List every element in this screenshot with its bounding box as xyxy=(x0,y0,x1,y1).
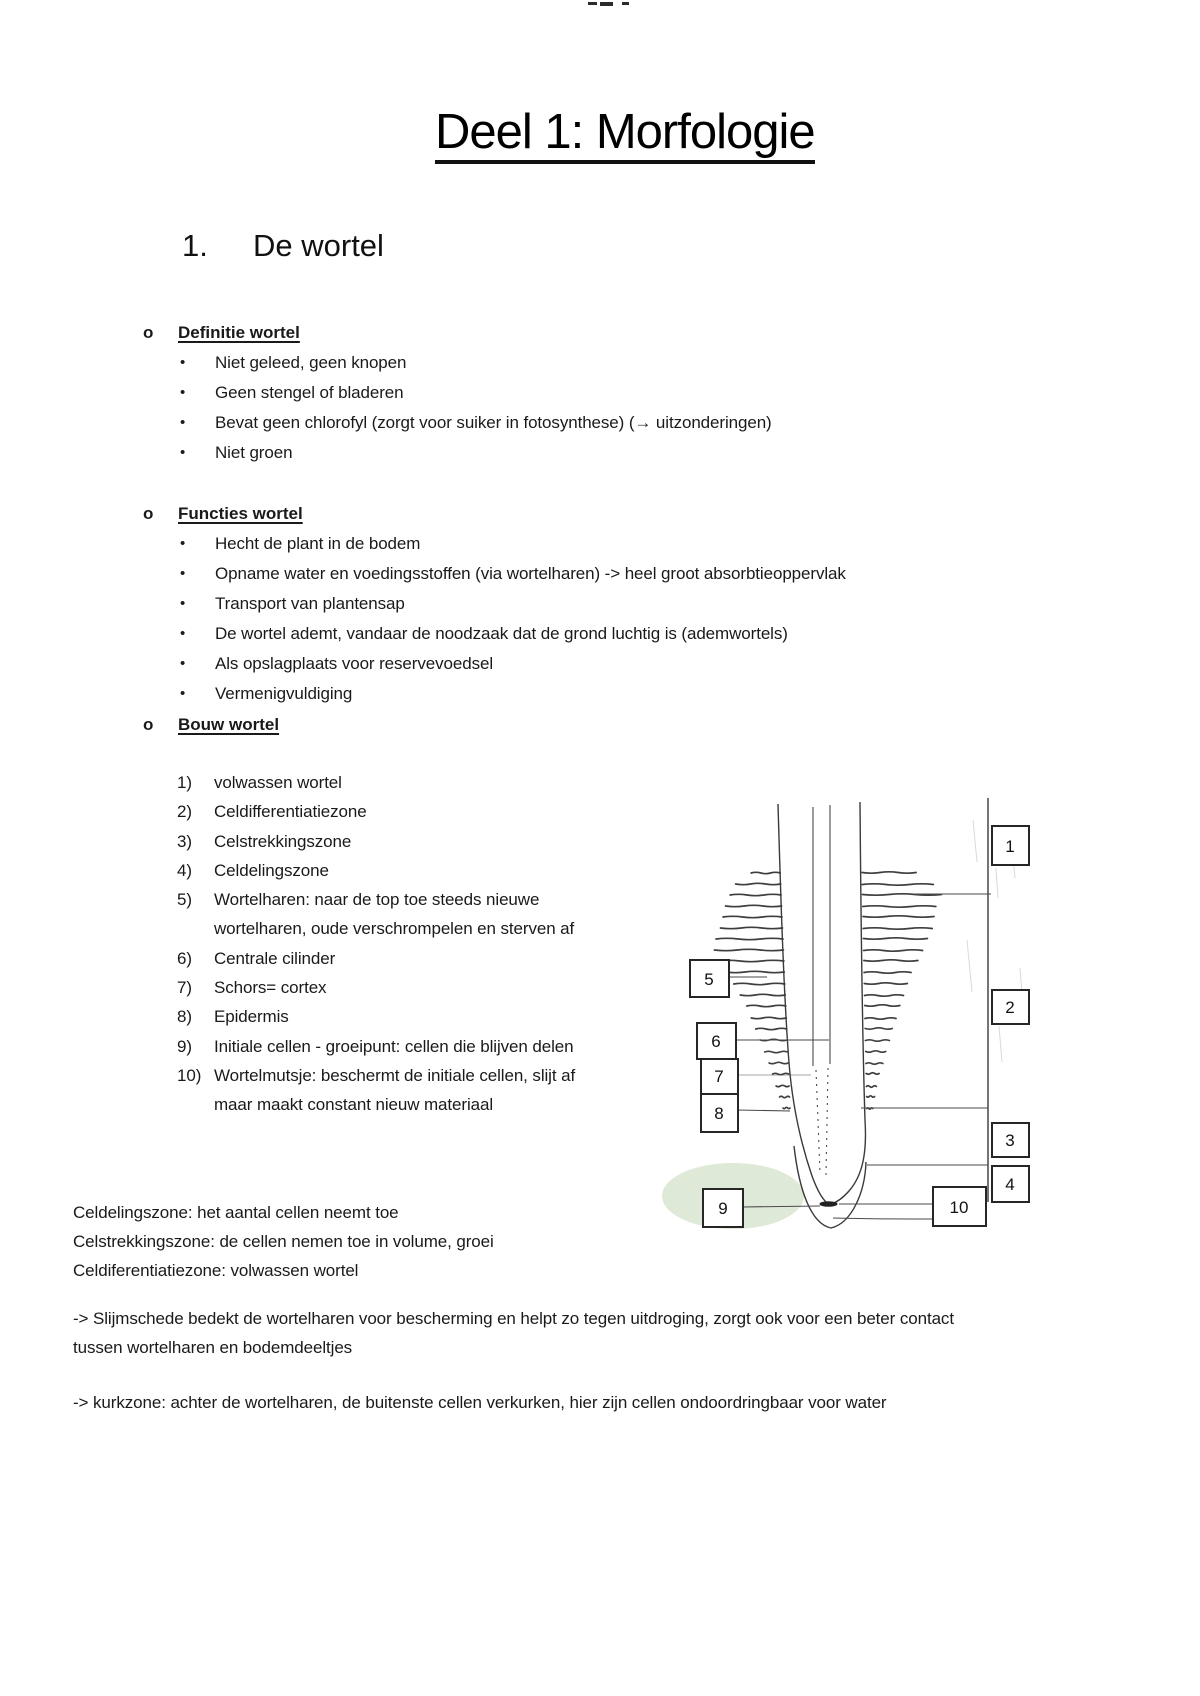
zone-note: Celdiferentiatiezone: volwassen wortel xyxy=(73,1256,1173,1285)
item-number: 1) xyxy=(177,768,214,797)
diagram-label-box-4: 4 xyxy=(992,1166,1029,1202)
zone-notes: Celdelingszone: het aantal cellen neemt … xyxy=(73,1198,1173,1285)
bullet-icon: • xyxy=(180,649,215,679)
item-number: 6) xyxy=(177,944,214,973)
item-number: 9) xyxy=(177,1032,214,1061)
diagram-label-box-8: 8 xyxy=(701,1094,738,1132)
svg-text:1: 1 xyxy=(1005,837,1014,856)
item-number: 7) xyxy=(177,973,214,1002)
section-marker: o xyxy=(143,710,178,740)
item-text: Epidermis xyxy=(214,1002,289,1031)
list-item: •Als opslagplaats voor reservevoedsel xyxy=(180,649,1123,679)
svg-text:4: 4 xyxy=(1005,1175,1014,1194)
diagram-label-box-3: 3 xyxy=(992,1123,1029,1157)
item-text: volwassen wortel xyxy=(214,768,342,797)
section-title-definitie: Definitie wortel xyxy=(178,318,300,348)
bullet-text: Hecht de plant in de bodem xyxy=(215,529,420,559)
numbered-item: 10)Wortelmutsje: beschermt de initiale c… xyxy=(177,1061,687,1120)
bullet-text: Vermenigvuldiging xyxy=(215,679,352,709)
bullet-icon: • xyxy=(180,619,215,649)
numbered-item: 2)Celdifferentiatiezone xyxy=(177,797,687,826)
list-item: •Opname water en voedingsstoffen (via wo… xyxy=(180,559,1123,589)
bullet-text: Bevat geen chlorofyl (zorgt voor suiker … xyxy=(215,408,772,438)
item-text: Wortelmutsje: beschermt de initiale cell… xyxy=(214,1061,575,1120)
bullet-text: Opname water en voedingsstoffen (via wor… xyxy=(215,559,846,589)
diagram-label-box-7: 7 xyxy=(701,1059,738,1094)
bullet-icon: • xyxy=(180,438,215,468)
item-text: Wortelharen: naar de top toe steeds nieu… xyxy=(214,885,574,944)
item-text: Initiale cellen - groeipunt: cellen die … xyxy=(214,1032,574,1061)
page-title: Deel 1: Morfologie xyxy=(435,106,815,164)
diagram-label-box-6: 6 xyxy=(697,1023,736,1059)
list-item: •Vermenigvuldiging xyxy=(180,679,1123,709)
numbered-item: 8)Epidermis xyxy=(177,1002,687,1031)
note-kurkzone: -> kurkzone: achter de wortelharen, de b… xyxy=(73,1388,1171,1417)
bullet-text: Niet groen xyxy=(215,438,292,468)
item-text: Celdelingszone xyxy=(214,856,329,885)
section-definitie: o Definitie wortel •Niet geleed, geen kn… xyxy=(143,318,1123,468)
list-item: •Transport van plantensap xyxy=(180,589,1123,619)
section-marker: o xyxy=(143,499,178,529)
item-number: 3) xyxy=(177,827,214,856)
svg-text:5: 5 xyxy=(704,970,713,989)
bullet-icon: • xyxy=(180,589,215,619)
bullet-text: Als opslagplaats voor reservevoedsel xyxy=(215,649,493,679)
bouw-numbered-list: 1)volwassen wortel 2)Celdifferentiatiezo… xyxy=(177,768,687,1120)
item-number: 4) xyxy=(177,856,214,885)
svg-text:8: 8 xyxy=(714,1104,723,1123)
chapter-number: 1. xyxy=(182,228,253,264)
numbered-item: 3)Celstrekkingszone xyxy=(177,827,687,856)
diagram-label-box-2: 2 xyxy=(992,990,1029,1024)
list-item: •Niet geleed, geen knopen xyxy=(180,348,1123,378)
bullet-text: Transport van plantensap xyxy=(215,589,405,619)
bullet-icon: • xyxy=(180,529,215,559)
item-number: 5) xyxy=(177,885,214,944)
item-text: Centrale cilinder xyxy=(214,944,335,973)
chapter-heading: 1. De wortel xyxy=(182,228,384,264)
numbered-item: 4)Celdelingszone xyxy=(177,856,687,885)
bullet-icon: • xyxy=(180,378,215,408)
zone-note: Celstrekkingszone: de cellen nemen toe i… xyxy=(73,1227,1173,1256)
chapter-title: De wortel xyxy=(253,228,384,264)
item-number: 10) xyxy=(177,1061,214,1120)
numbered-item: 6)Centrale cilinder xyxy=(177,944,687,973)
svg-text:2: 2 xyxy=(1005,998,1014,1017)
item-text: Celdifferentiatiezone xyxy=(214,797,367,826)
section-marker: o xyxy=(143,318,178,348)
bullet-text: Geen stengel of bladeren xyxy=(215,378,404,408)
zone-note: Celdelingszone: het aantal cellen neemt … xyxy=(73,1198,1173,1227)
note-slijmschede: -> Slijmschede bedekt de wortelharen voo… xyxy=(73,1304,1171,1362)
section-title-functies: Functies wortel xyxy=(178,499,303,529)
list-item: •Bevat geen chlorofyl (zorgt voor suiker… xyxy=(180,408,1123,438)
root-diagram: 1 2 3 4 5 6 7 8 9 10 xyxy=(615,728,1035,1240)
bullet-icon: • xyxy=(180,348,215,378)
item-text: Celstrekkingszone xyxy=(214,827,351,856)
list-item: •De wortel ademt, vandaar de noodzaak da… xyxy=(180,619,1123,649)
diagram-label-box-1: 1 xyxy=(992,826,1029,865)
section-title-bouw: Bouw wortel xyxy=(178,710,279,740)
bullet-icon: • xyxy=(180,679,215,709)
numbered-item: 1)volwassen wortel xyxy=(177,768,687,797)
item-number: 8) xyxy=(177,1002,214,1031)
list-item: •Geen stengel of bladeren xyxy=(180,378,1123,408)
svg-text:7: 7 xyxy=(714,1067,723,1086)
item-text: Schors= cortex xyxy=(214,973,326,1002)
list-item: •Niet groen xyxy=(180,438,1123,468)
bullet-icon: • xyxy=(180,408,215,438)
bullet-text: De wortel ademt, vandaar de noodzaak dat… xyxy=(215,619,788,649)
bullet-icon: • xyxy=(180,559,215,589)
numbered-item: 7)Schors= cortex xyxy=(177,973,687,1002)
diagram-label-box-5: 5 xyxy=(690,960,729,997)
document-page: Deel 1: Morfologie 1. De wortel o Defini… xyxy=(0,0,1200,1696)
section-functies: o Functies wortel •Hecht de plant in de … xyxy=(143,499,1123,709)
item-number: 2) xyxy=(177,797,214,826)
svg-text:3: 3 xyxy=(1005,1131,1014,1150)
svg-text:6: 6 xyxy=(711,1032,720,1051)
numbered-item: 9)Initiale cellen - groeipunt: cellen di… xyxy=(177,1032,687,1061)
bullet-text: Niet geleed, geen knopen xyxy=(215,348,406,378)
list-item: •Hecht de plant in de bodem xyxy=(180,529,1123,559)
numbered-item: 5)Wortelharen: naar de top toe steeds ni… xyxy=(177,885,687,944)
scan-artifact xyxy=(588,2,632,7)
